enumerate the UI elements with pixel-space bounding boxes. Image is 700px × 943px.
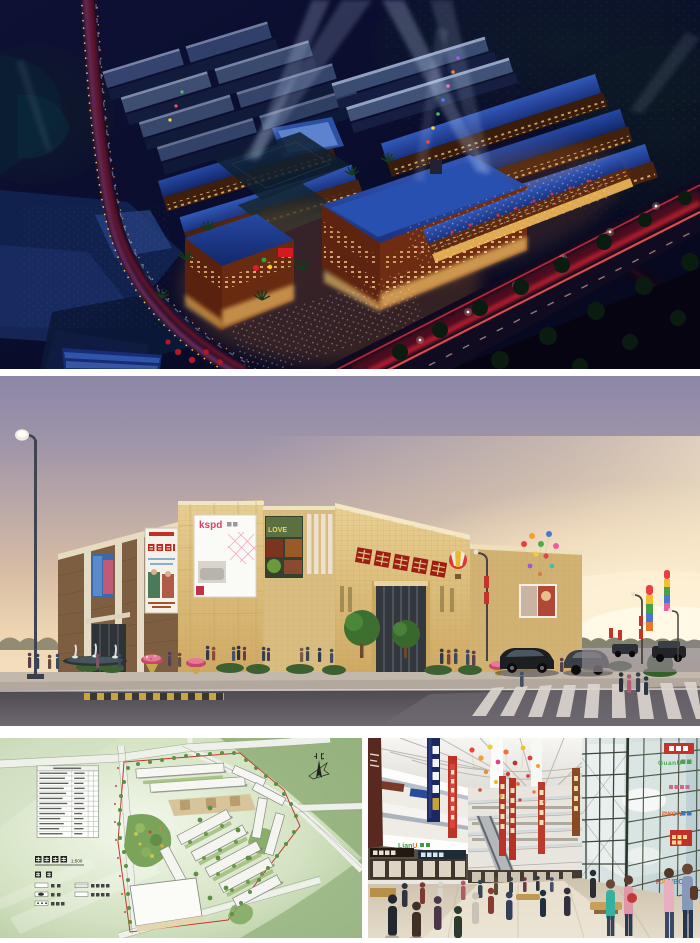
svg-text:1:500: 1:500 bbox=[71, 859, 83, 864]
svg-text:kspd: kspd bbox=[199, 520, 222, 531]
svg-text:PWOW: PWOW bbox=[662, 812, 682, 818]
svg-text:GuanU: GuanU bbox=[658, 760, 682, 767]
svg-text:LOVE: LOVE bbox=[268, 527, 287, 534]
